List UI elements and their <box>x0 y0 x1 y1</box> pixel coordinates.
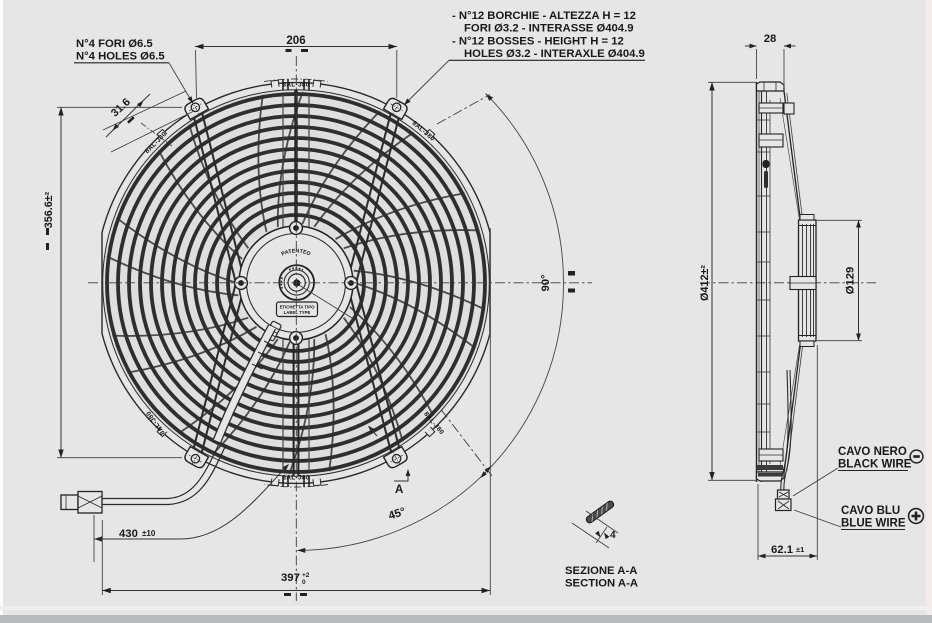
svg-text:HOLES Ø3.2 - INTERAXLE Ø404.9: HOLES Ø3.2 - INTERAXLE Ø404.9 <box>464 48 645 60</box>
svg-text:CAVO BLU: CAVO BLU <box>841 505 900 517</box>
svg-text:FORI Ø3.2 - INTERASSE Ø404.9: FORI Ø3.2 - INTERASSE Ø404.9 <box>464 23 634 35</box>
svg-text:- N°12 BORCHIE - ALTEZZA H = 1: - N°12 BORCHIE - ALTEZZA H = 12 <box>452 10 636 22</box>
svg-text:Ø412±²: Ø412±² <box>699 265 711 301</box>
svg-text:356.6±²: 356.6±² <box>43 191 55 228</box>
svg-text:SECTION A-A: SECTION A-A <box>565 578 638 590</box>
svg-text:±1: ±1 <box>796 545 804 554</box>
svg-text:BLACK WIRE: BLACK WIRE <box>838 459 912 471</box>
svg-text:ETICHETTA TIPO: ETICHETTA TIPO <box>280 304 316 309</box>
svg-text:62.1: 62.1 <box>771 544 793 556</box>
svg-text:SEZIONE A-A: SEZIONE A-A <box>565 565 637 577</box>
svg-text:BLUE WIRE: BLUE WIRE <box>841 518 906 530</box>
svg-text:±10: ±10 <box>142 529 156 538</box>
svg-text:- N°12 BOSSES - HEIGHT H = 12: - N°12 BOSSES - HEIGHT H = 12 <box>452 35 624 47</box>
svg-text:90°: 90° <box>540 274 552 292</box>
svg-text:LABEL TYPE: LABEL TYPE <box>284 310 311 315</box>
svg-text:A: A <box>395 484 403 496</box>
svg-text:430: 430 <box>119 528 138 540</box>
svg-text:CAVO NERO: CAVO NERO <box>838 446 907 458</box>
svg-text:Ø129: Ø129 <box>845 267 857 295</box>
svg-text:28: 28 <box>764 33 777 45</box>
svg-text:N°4 HOLES Ø6.5: N°4 HOLES Ø6.5 <box>76 51 165 63</box>
svg-text:N°4 FORI Ø6.5: N°4 FORI Ø6.5 <box>76 38 153 50</box>
svg-text:+2: +2 <box>302 572 310 579</box>
svg-text:4: 4 <box>610 530 616 541</box>
svg-text:397: 397 <box>281 572 300 584</box>
svg-text:0: 0 <box>302 579 306 586</box>
svg-text:206: 206 <box>286 35 305 47</box>
